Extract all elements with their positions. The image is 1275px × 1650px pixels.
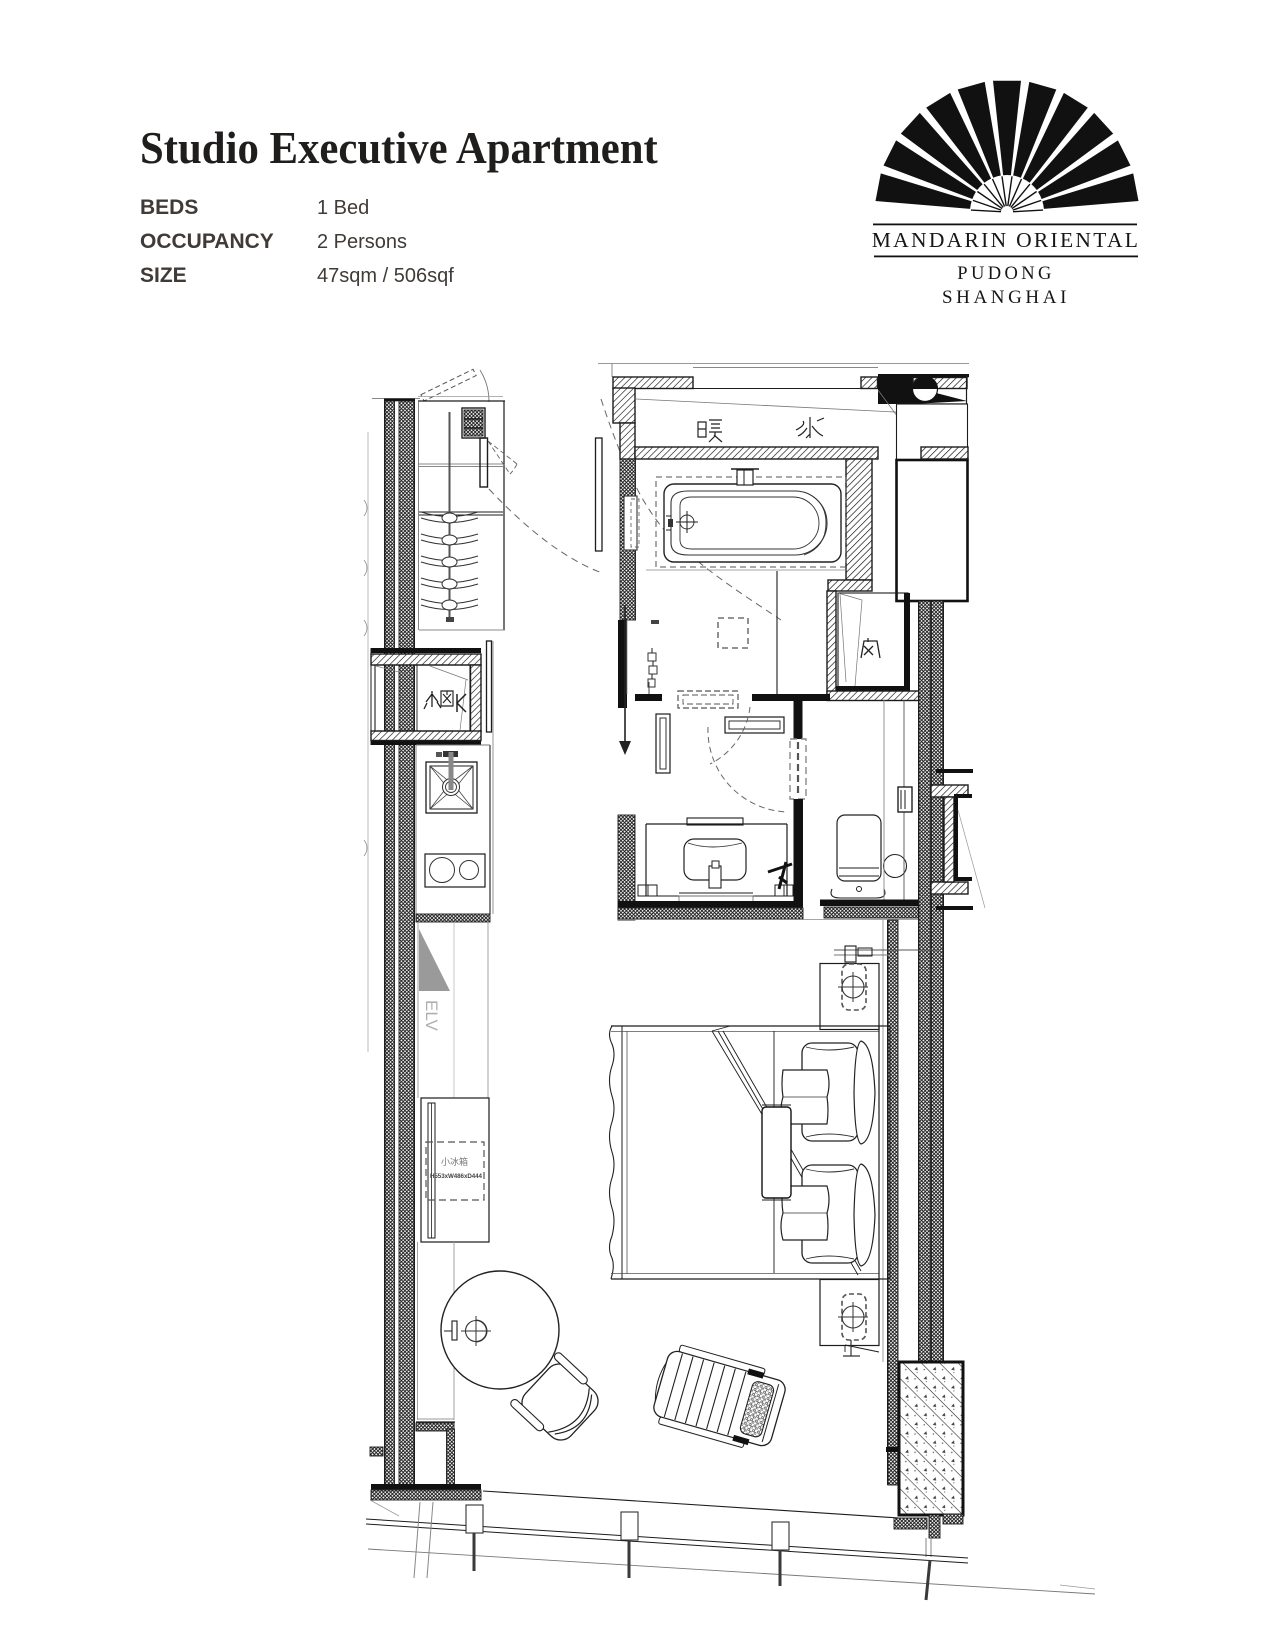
svg-text:小冰箱: 小冰箱 [441, 1156, 468, 1167]
svg-text:SHANGHAI: SHANGHAI [942, 287, 1070, 308]
svg-text:H553xW486xD444: H553xW486xD444 [430, 1173, 483, 1180]
svg-text:ELV: ELV [422, 1000, 441, 1032]
svg-text:PUDONG: PUDONG [957, 264, 1055, 284]
svg-text:MANDARIN ORIENTAL: MANDARIN ORIENTAL [872, 228, 1140, 252]
